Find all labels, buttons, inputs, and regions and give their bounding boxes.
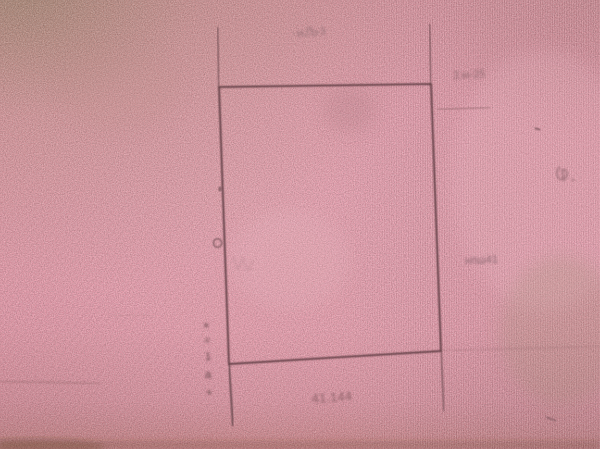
svg-text:а: а [205,369,212,381]
svg-text:×: × [203,320,209,332]
svg-text:+: + [206,387,212,399]
svg-text:41.144: 41.144 [311,389,353,406]
svg-text:=: = [204,335,210,347]
svg-text:нпш41: нпш41 [465,254,498,267]
svg-text:3.м-25: 3.м-25 [453,68,486,82]
svg-text:1: 1 [205,351,211,363]
